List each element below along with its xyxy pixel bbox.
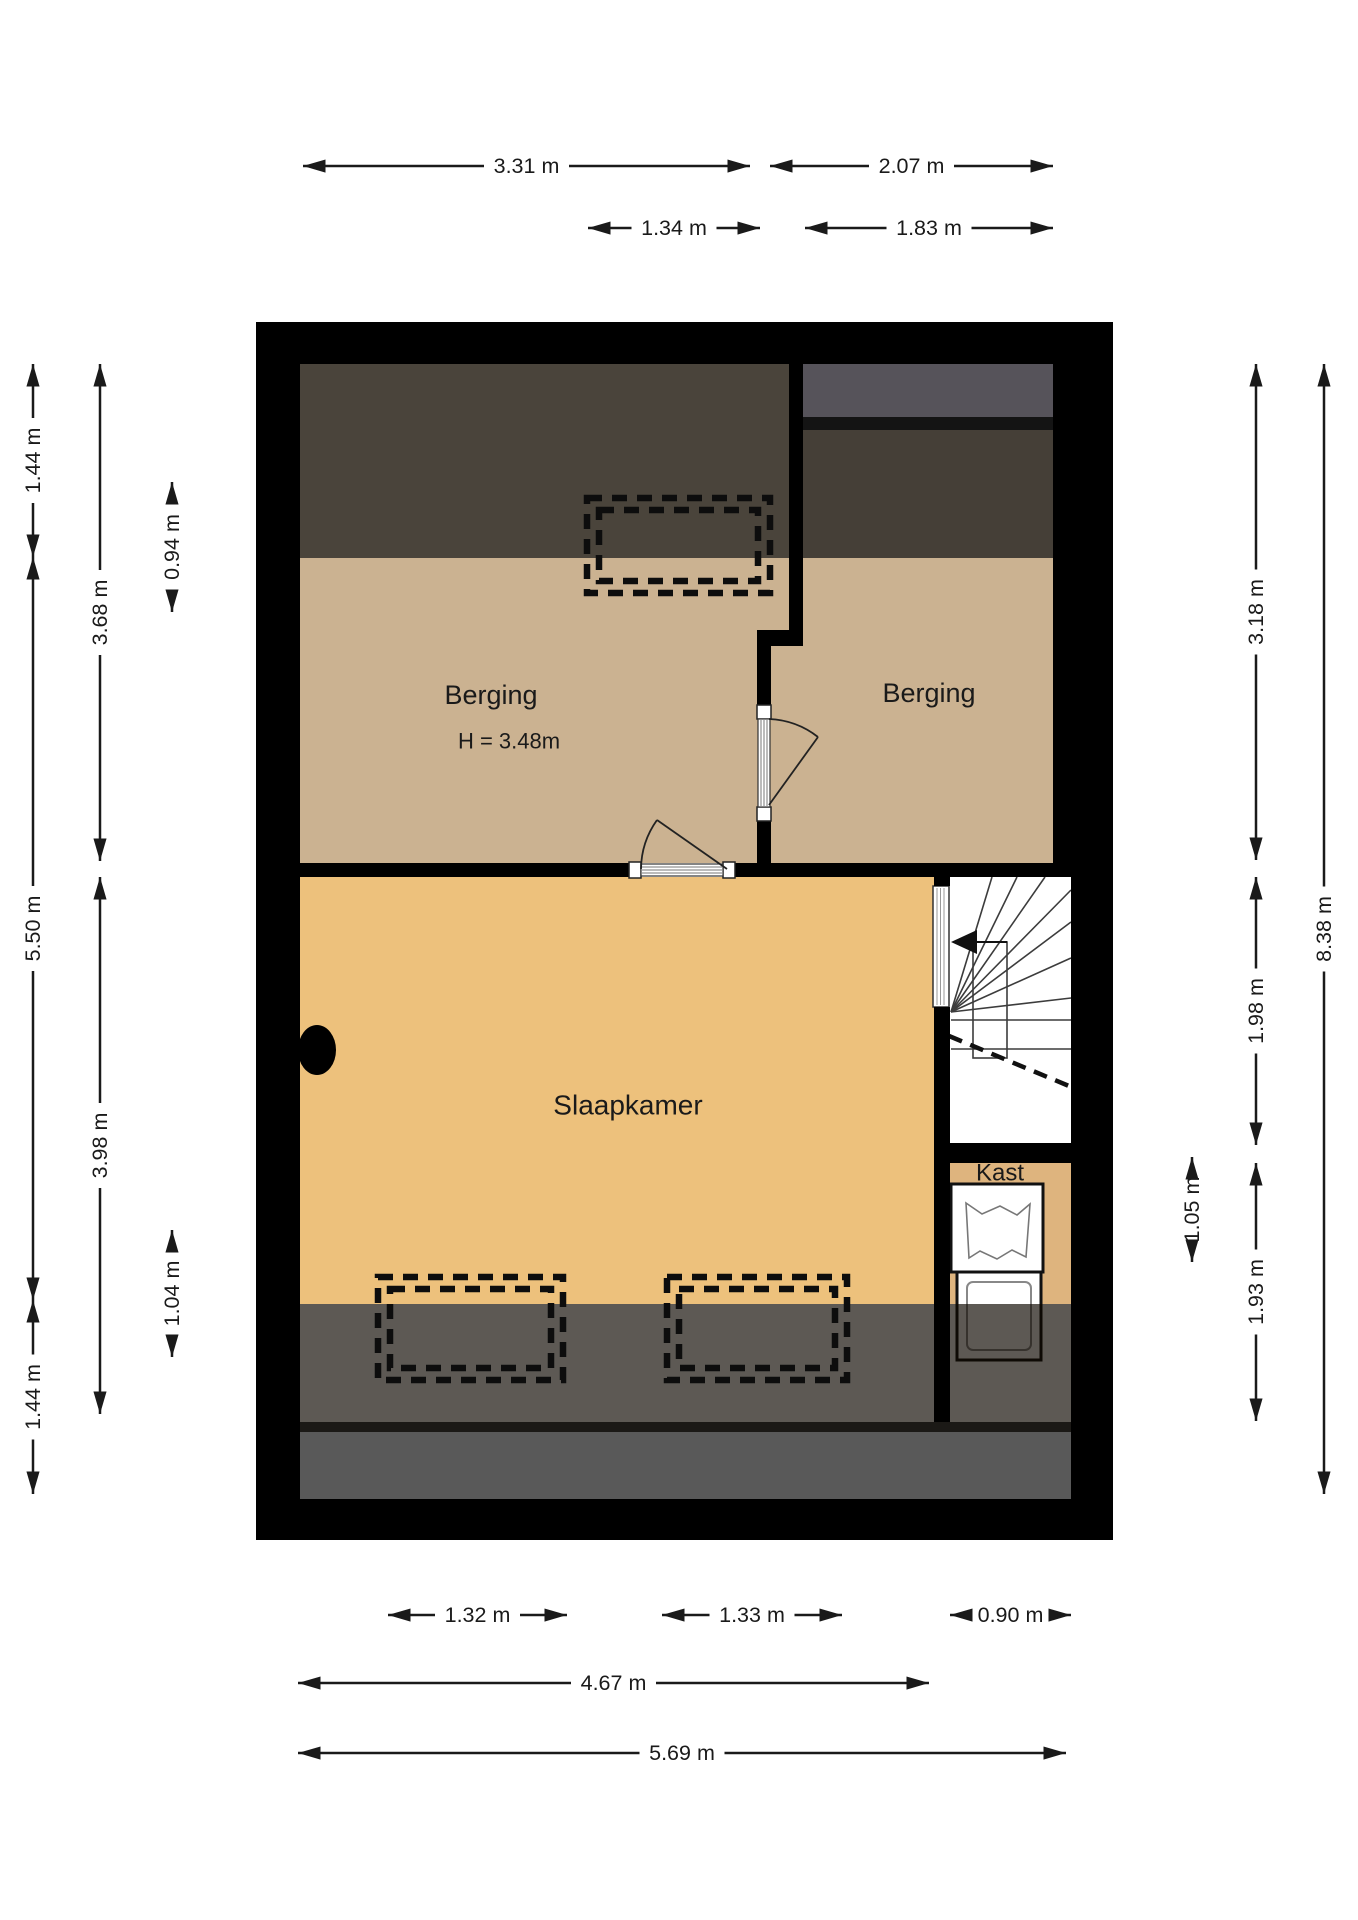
door-jamb [723, 862, 735, 878]
dim-top-3-31-m-label: 3.31 m [494, 154, 560, 178]
bottom-gray-strip [300, 1432, 1071, 1499]
dim-bottom-1-32-m-label: 1.32 m [445, 1603, 511, 1627]
wall-slaapkamer-kast [934, 1163, 950, 1422]
door-jamb [629, 862, 641, 878]
dim-top-1-34-m-label: 1.34 m [641, 216, 707, 240]
dim-top-3-31-m: 3.31 m [303, 154, 750, 178]
stair-entry-opening [933, 886, 949, 1007]
dim-top-2-07-m: 2.07 m [770, 154, 1053, 178]
dim-left-5-50-m-label: 5.50 m [21, 896, 45, 962]
wall-left [256, 322, 300, 1540]
dim-left-1-04-m-label: 1.04 m [160, 1261, 184, 1327]
dim-top-2-07-m-label: 2.07 m [879, 154, 945, 178]
wall-berging-divider-below-door [757, 821, 771, 863]
room-label-berging-right: Berging [882, 678, 975, 708]
dim-right-3-18-m: 3.18 m [1244, 364, 1268, 860]
dim-left-3-68-m: 3.68 m [88, 364, 112, 861]
attic-shade-top-right [803, 430, 1053, 558]
room-height-berging-left: H = 3.48m [458, 729, 560, 754]
dim-bottom-4-67-m-label: 4.67 m [581, 1671, 647, 1695]
dim-left-1-44-m-bottom: 1.44 m [21, 1300, 45, 1494]
party-wall-gray-strip [803, 364, 1053, 417]
dim-left-3-98-m-label: 3.98 m [88, 1113, 112, 1179]
column-dot [298, 1025, 336, 1075]
wall-top [256, 322, 1113, 364]
door-jamb [757, 705, 771, 719]
wall-slaapkamer-stair [934, 1007, 950, 1163]
dim-left-1-44-m-top-label: 1.44 m [21, 428, 45, 494]
dim-bottom-0-90-m-label: 0.90 m [978, 1603, 1044, 1627]
floorplan-page: Berging H = 3.48m Berging Slaapkamer Kas… [0, 0, 1358, 1920]
knee-wall-line [300, 1422, 1071, 1432]
dim-left-1-44-m-bottom-label: 1.44 m [21, 1364, 45, 1430]
dim-bottom-0-90-m: 0.90 m [950, 1603, 1071, 1627]
wall-right-upper [1053, 322, 1113, 877]
dim-right-1-98-m: 1.98 m [1244, 877, 1268, 1145]
floorplan-drawing: Berging H = 3.48m Berging Slaapkamer Kas… [0, 0, 1358, 1920]
wall-bottom [256, 1499, 1113, 1540]
dim-left-3-98-m: 3.98 m [88, 877, 112, 1414]
dim-bottom-5-69-m: 5.69 m [298, 1741, 1066, 1765]
wall-berging-divider-upper [789, 364, 803, 632]
dim-right-8-38-m: 8.38 m [1312, 364, 1336, 1494]
dim-right-1-05-m-label: 1.05 m [1180, 1177, 1204, 1243]
dim-left-0-94-m: 0.94 m [160, 482, 184, 612]
room-label-slaapkamer: Slaapkamer [553, 1090, 702, 1121]
wall-berging-slaapkamer-right [735, 863, 1053, 877]
bottom-shade-overlay [300, 1304, 1071, 1422]
dim-left-1-44-m-top: 1.44 m [21, 364, 45, 557]
dim-left-3-68-m-label: 3.68 m [88, 580, 112, 646]
party-wall-band [803, 417, 1053, 430]
dim-right-1-93-m: 1.93 m [1244, 1163, 1268, 1421]
dim-right-8-38-m-label: 8.38 m [1312, 896, 1336, 962]
dim-bottom-1-33-m-label: 1.33 m [719, 1603, 785, 1627]
dim-right-1-98-m-label: 1.98 m [1244, 978, 1268, 1044]
room-label-kast: Kast [976, 1160, 1024, 1187]
dim-bottom-5-69-m-label: 5.69 m [649, 1741, 715, 1765]
dim-left-0-94-m-label: 0.94 m [160, 514, 184, 580]
wall-right-lower [1071, 877, 1113, 1540]
dim-right-1-05-m: 1.05 m [1180, 1157, 1204, 1262]
dim-top-1-34-m: 1.34 m [588, 216, 760, 240]
room-label-berging-left: Berging [444, 680, 537, 710]
dim-right-3-18-m-label: 3.18 m [1244, 579, 1268, 645]
dim-right-1-93-m-label: 1.93 m [1244, 1259, 1268, 1325]
dim-left-5-50-m: 5.50 m [21, 557, 45, 1300]
door-jamb [757, 807, 771, 821]
dim-left-1-04-m: 1.04 m [160, 1230, 184, 1357]
wall-berging-slaapkamer-left [300, 863, 629, 877]
bottom-low-headroom-zone [300, 1304, 1071, 1499]
wall-stair-stub [934, 877, 950, 886]
dim-bottom-1-32-m: 1.32 m [388, 1603, 567, 1627]
dim-top-1-83-m-label: 1.83 m [896, 216, 962, 240]
attic-shade-top-left [300, 364, 789, 558]
dim-bottom-1-33-m: 1.33 m [662, 1603, 842, 1627]
dim-top-1-83-m: 1.83 m [805, 216, 1053, 240]
wall-berging-divider-lower [757, 632, 771, 705]
dim-bottom-4-67-m: 4.67 m [298, 1671, 929, 1695]
